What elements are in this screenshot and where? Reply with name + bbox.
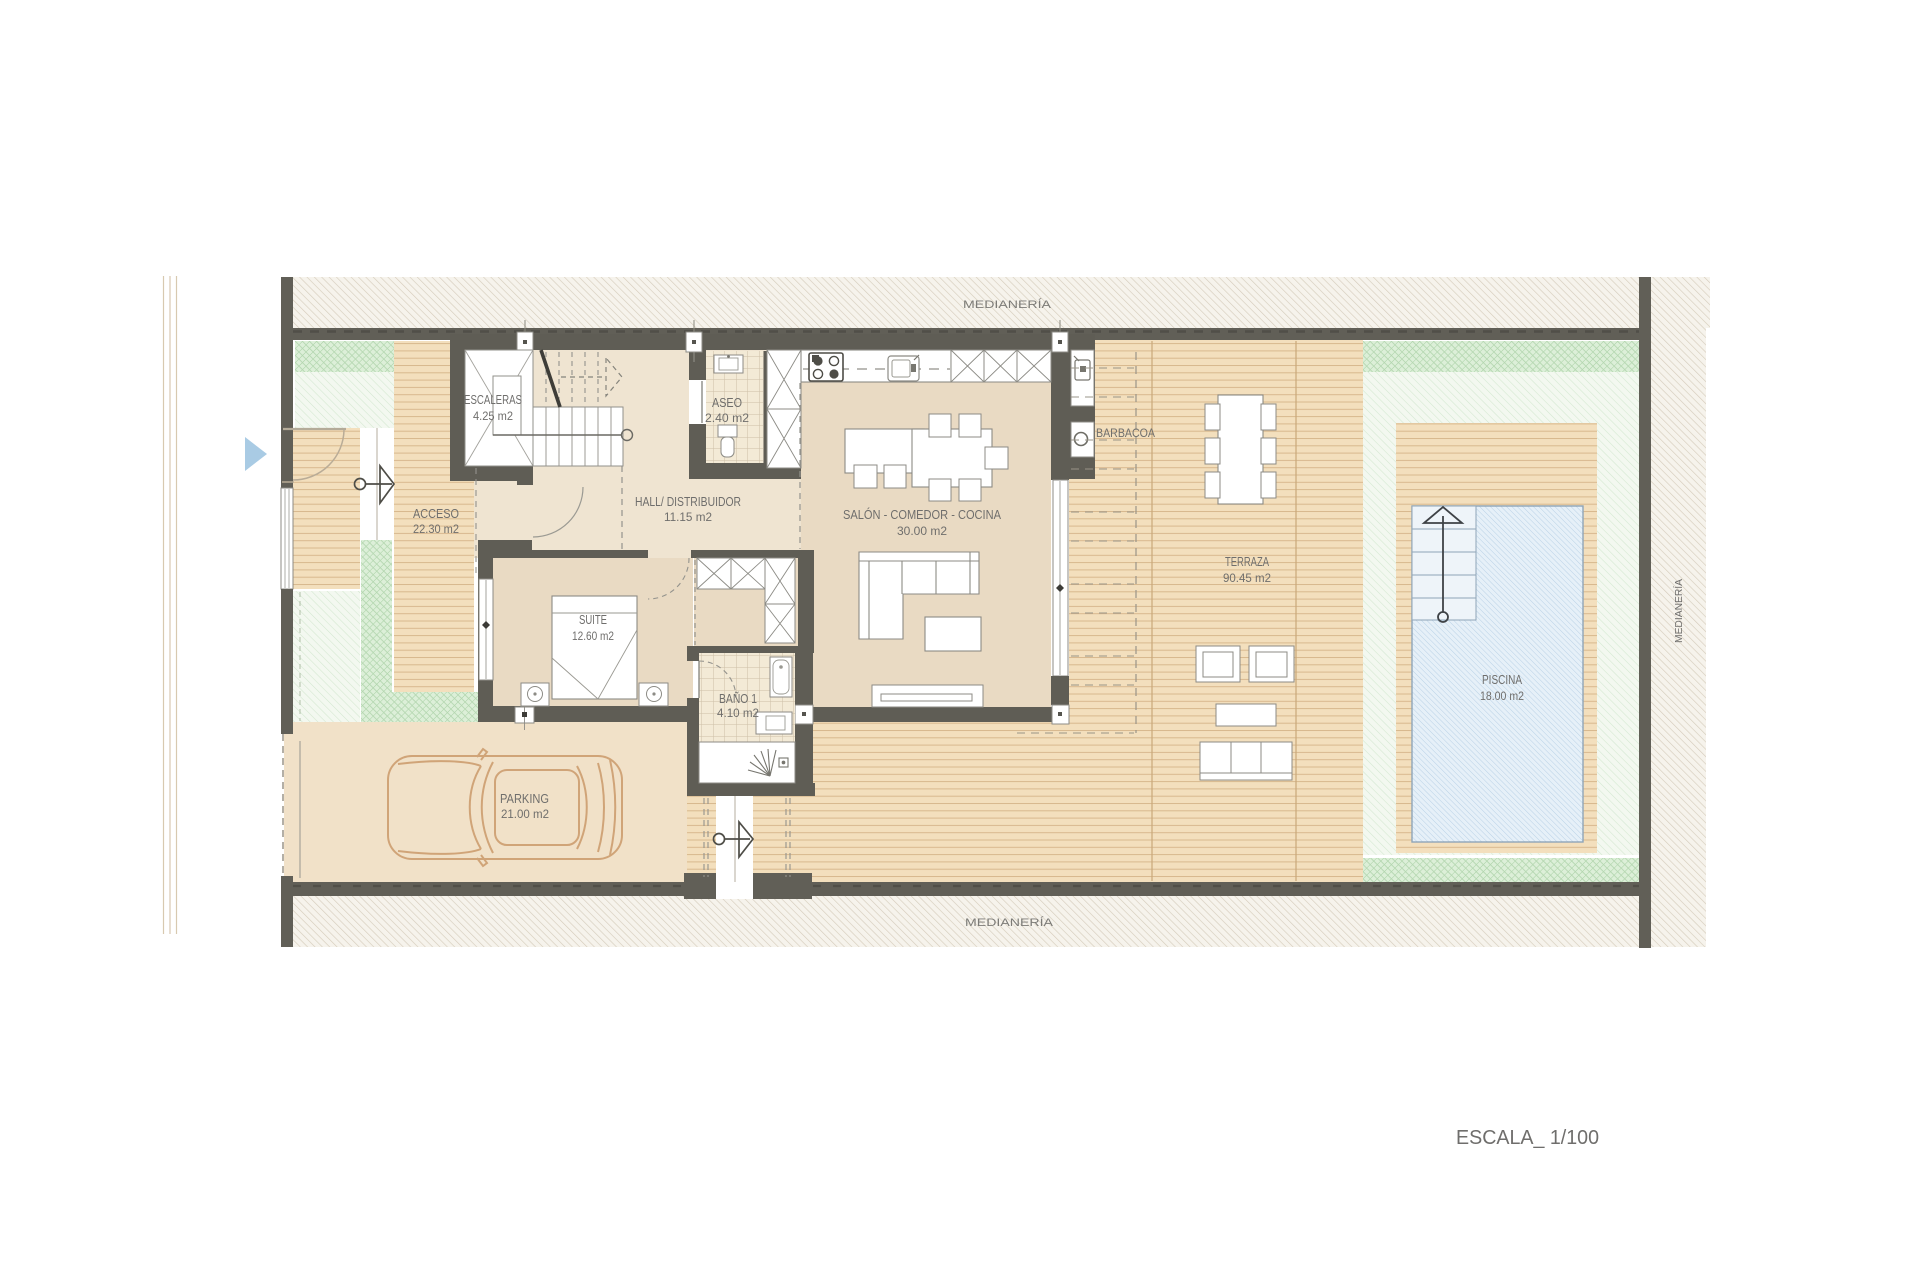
svg-text:MEDIANERÍA: MEDIANERÍA	[963, 298, 1052, 311]
svg-text:ASEO: ASEO	[712, 396, 742, 410]
svg-text:ESCALA_ 1/100: ESCALA_ 1/100	[1456, 1127, 1599, 1149]
svg-text:TERRAZA: TERRAZA	[1225, 555, 1269, 569]
svg-text:2.40 m2: 2.40 m2	[705, 413, 749, 425]
svg-text:BAÑO 1: BAÑO 1	[719, 692, 757, 706]
svg-text:MEDIANERÍA: MEDIANERÍA	[965, 916, 1054, 929]
svg-text:22.30 m2: 22.30 m2	[413, 524, 459, 536]
svg-text:90.45 m2: 90.45 m2	[1223, 573, 1271, 585]
svg-text:PISCINA: PISCINA	[1482, 673, 1523, 687]
svg-text:4.10 m2: 4.10 m2	[717, 708, 759, 720]
svg-text:18.00 m2: 18.00 m2	[1480, 691, 1524, 703]
svg-text:MEDIANERÍA: MEDIANERÍA	[1672, 579, 1685, 643]
svg-text:30.00 m2: 30.00 m2	[897, 526, 947, 538]
svg-text:11.15 m2: 11.15 m2	[664, 512, 712, 524]
svg-text:4.25 m2: 4.25 m2	[473, 411, 513, 423]
svg-text:ACCESO: ACCESO	[413, 507, 459, 521]
svg-text:SALÓN - COMEDOR - COCINA: SALÓN - COMEDOR - COCINA	[843, 507, 1002, 522]
svg-text:SUITE: SUITE	[579, 613, 607, 627]
svg-text:ESCALERAS: ESCALERAS	[464, 393, 522, 407]
svg-text:12.60 m2: 12.60 m2	[572, 631, 614, 643]
svg-text:21.00 m2: 21.00 m2	[501, 809, 549, 821]
svg-text:HALL/ DISTRIBUIDOR: HALL/ DISTRIBUIDOR	[635, 495, 741, 509]
svg-text:PARKING: PARKING	[500, 792, 549, 806]
svg-text:BARBACOA: BARBACOA	[1096, 428, 1155, 440]
